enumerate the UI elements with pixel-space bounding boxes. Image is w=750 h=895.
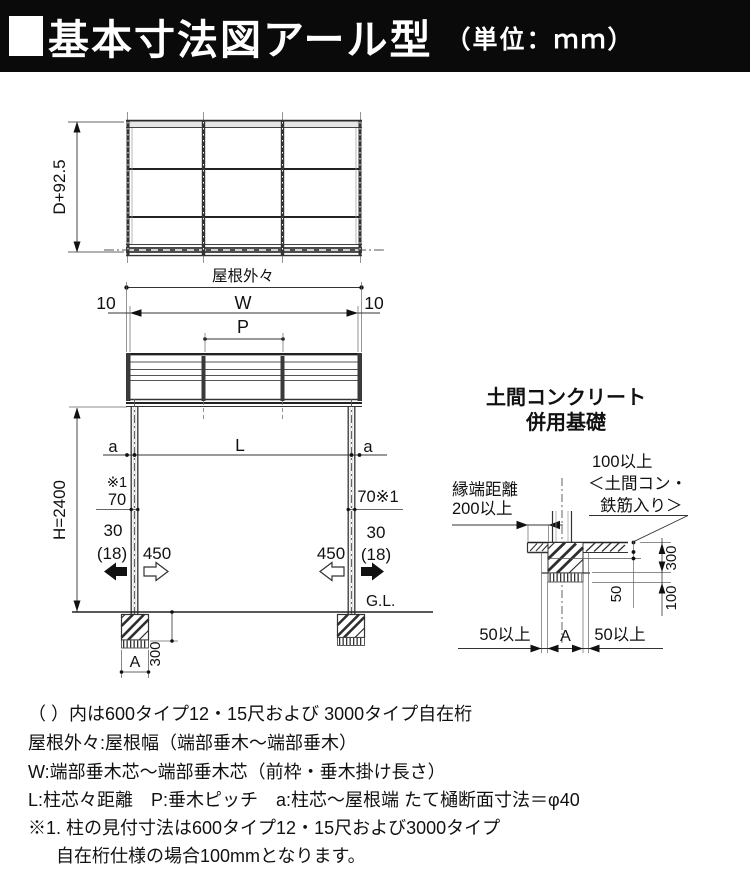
note-line-6: 自在桁仕様の場合100mmとなります。 — [56, 842, 366, 868]
footing-depth-label: 300 — [147, 641, 164, 666]
clearance-18-left: (18) — [97, 544, 127, 563]
arrow-out-left — [104, 563, 127, 581]
note-ref-label: ※1 — [107, 475, 127, 491]
page: 基本寸法図アール型 （単位：ｍｍ） — [0, 0, 750, 895]
slab-note-line2: ＜土間コン・ — [588, 474, 687, 493]
detail-right-dimension: 300 100 — [592, 538, 680, 616]
arrow-out-right — [361, 563, 384, 581]
height-label: H=2400 — [50, 480, 69, 540]
arrow-in-right — [320, 563, 344, 581]
note-line-2: 屋根外々:屋根幅（端部垂木〜端部垂木） — [28, 729, 357, 755]
footing-width-label: A — [130, 654, 141, 671]
detail-title-line1: 土間コンクリート — [486, 386, 646, 409]
edge-distance-label1: 縁端距離 — [452, 480, 518, 499]
gap-50-label: 50 — [608, 586, 625, 603]
width-label: W — [235, 293, 252, 313]
depth-300-label: 300 — [663, 545, 680, 570]
right-footing — [338, 615, 365, 646]
clearance-450-left: 450 — [143, 544, 171, 563]
pitch-label: P — [237, 317, 249, 337]
front-view-roof — [126, 353, 362, 421]
a-right-label: a — [363, 438, 373, 456]
slab-note-line1: 100以上 — [592, 452, 653, 471]
detail-bottom-dimension: 50以上 A 50以上 — [458, 625, 663, 652]
roof-outer-width-label: 屋根外々 — [212, 267, 274, 285]
note-line-3: W:端部垂木芯〜端部垂木芯（前枠・垂木掛け長さ） — [28, 758, 446, 784]
detail-title-line2: 併用基礎 — [525, 410, 607, 434]
detail-footing — [542, 543, 642, 583]
clearance-30-right: 30 — [367, 523, 386, 542]
slab-100-label: 100 — [663, 585, 680, 610]
depth-dim-label: D+92.5 — [50, 159, 69, 214]
clearance-30-left: 30 — [104, 521, 123, 540]
foundation-detail: 土間コンクリート 併用基礎 縁端距離 200以上 100以上 ＜土間コン・ 鉄筋… — [452, 386, 688, 653]
arrow-in-left — [144, 563, 168, 581]
top-view: D+92.5 屋根外々 — [50, 112, 386, 352]
clearance-450-right: 450 — [317, 544, 345, 563]
post-width-right-label: 70※1 — [357, 488, 398, 506]
slab-note-line3: 鉄筋入り＞ — [600, 496, 683, 515]
min50-right-label: 50以上 — [594, 625, 645, 644]
note-line-1: （ ）内は600タイプ12・15尺および 3000タイプ自在桁 — [28, 700, 472, 726]
span-label: L — [235, 435, 245, 455]
note-line-4: L:柱芯々距離 P:垂木ピッチ a:柱芯〜屋根端 たて樋断面寸法＝φ40 — [28, 786, 580, 812]
ground-level-label: G.L. — [366, 593, 395, 610]
detail-footing-width-label: A — [560, 628, 571, 645]
front-view: 10 W 10 P — [50, 293, 433, 678]
clearance-18-right: (18) — [361, 545, 391, 564]
left-footing: 300 A — [120, 610, 178, 678]
note-line-5: ※1. 柱の見付寸法は600タイプ12・15尺および3000タイプ — [28, 814, 500, 840]
offset-left-label: 10 — [96, 293, 116, 313]
min50-left-label: 50以上 — [479, 625, 530, 644]
a-left-label: a — [108, 438, 118, 456]
edge-distance-label2: 200以上 — [452, 499, 513, 518]
offset-right-label: 10 — [364, 293, 384, 313]
top-view-depth-dimension: D+92.5 — [50, 122, 124, 253]
post-width-left-label: 70 — [108, 491, 126, 509]
